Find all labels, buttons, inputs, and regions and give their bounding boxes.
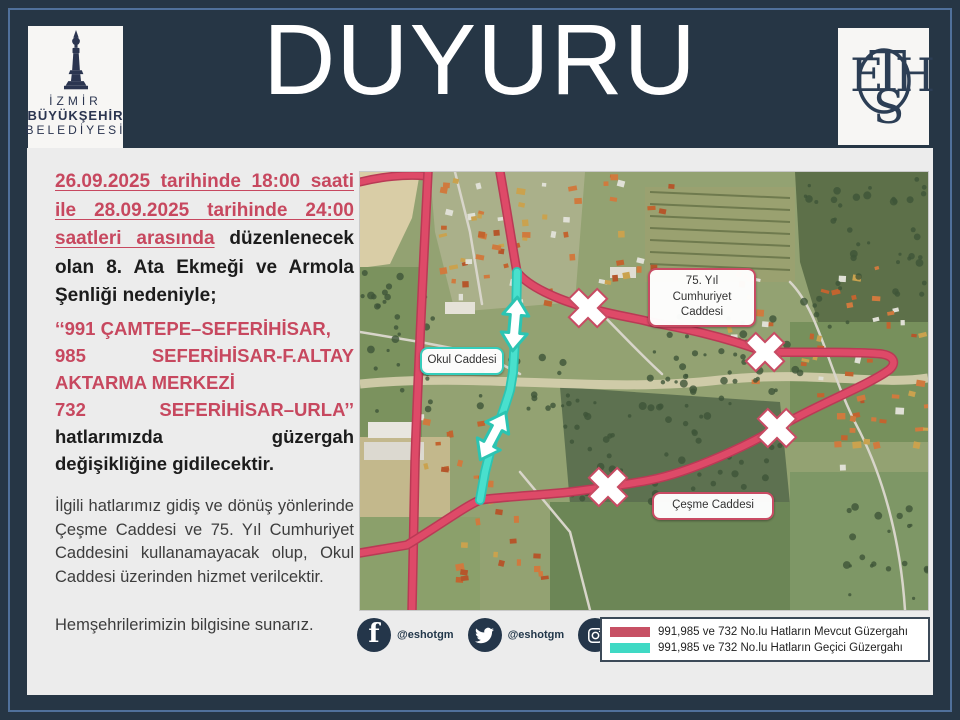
street-label-okul: Okul Caddesi <box>420 347 504 375</box>
logo-text-belediyesi: BELEDİYESİ <box>25 123 125 137</box>
map-legend: 991,985 ve 732 No.lu Hatların Mevcut Güz… <box>600 617 930 662</box>
twitter-account[interactable]: @eshotgm <box>468 618 565 652</box>
street-label-cesme: Çeşme Caddesi <box>652 492 774 520</box>
route-line-aktarma: AKTARMA MERKEZİ <box>55 369 354 396</box>
route-map[interactable]: 75. Yıl Cumhuriyet Caddesi Okul Caddesi … <box>360 172 928 610</box>
content-panel: 26.09.2025 tarihinde 18:00 saati ile 28.… <box>27 148 933 695</box>
paragraph-detail: İlgili hatlarımız gidiş ve dönüş yönleri… <box>55 495 354 591</box>
izmir-clock-tower-icon <box>55 30 97 92</box>
page-title: DUYURU <box>135 6 825 114</box>
legend-swatch-current <box>610 627 650 637</box>
route-line-991: ‘‘991 ÇAMTEPE–SEFERİHİSAR, <box>55 315 354 342</box>
paragraph-closing: Hemşehrilerimizin bilgisine sunarız. <box>55 616 354 635</box>
paragraph-dates: 26.09.2025 tarihinde 18:00 saati ile 28.… <box>55 168 354 311</box>
legend-label-current: 991,985 ve 732 No.lu Hatların Mevcut Güz… <box>658 626 908 638</box>
logo-text-buyuksehir: BÜYÜKŞEHİR <box>28 108 124 123</box>
announcement-text: 26.09.2025 tarihinde 18:00 saati ile 28.… <box>55 168 354 635</box>
facebook-account[interactable]: f @eshotgm <box>357 618 454 652</box>
twitter-icon[interactable] <box>468 618 502 652</box>
paragraph-routes: ‘‘991 ÇAMTEPE–SEFERİHİSAR, 985 SEFERİHİS… <box>55 315 354 478</box>
announcement-poster: İZMİR BÜYÜKŞEHİR BELEDİYESİ DUYURU E T H… <box>0 0 960 720</box>
facebook-handle: @eshotgm <box>397 629 454 641</box>
route-line-985: 985 SEFERİHİSAR-F.ALTAY <box>55 342 354 369</box>
legend-label-temporary: 991,985 ve 732 No.lu Hatların Geçici Güz… <box>658 642 903 654</box>
twitter-handle: @eshotgm <box>508 629 565 641</box>
facebook-icon[interactable]: f <box>357 618 391 652</box>
legend-row-temporary: 991,985 ve 732 No.lu Hatların Geçici Güz… <box>610 642 920 654</box>
logo-text-izmir: İZMİR <box>49 94 102 108</box>
eshot-monogram-icon: E T H S <box>838 28 929 145</box>
legend-swatch-temporary <box>610 643 650 653</box>
izmir-municipality-logo: İZMİR BÜYÜKŞEHİR BELEDİYESİ <box>28 26 123 149</box>
route-change-text-1: hatlarımızda güzergah <box>55 423 354 450</box>
route-change-text-2: değişikliğine gidilecektir. <box>55 450 354 477</box>
street-label-75-yil-cumhuriyet: 75. Yıl Cumhuriyet Caddesi <box>648 268 756 327</box>
eshot-logo: E T H S <box>838 28 929 145</box>
legend-row-current: 991,985 ve 732 No.lu Hatların Mevcut Güz… <box>610 626 920 638</box>
satellite-map-canvas <box>360 172 928 610</box>
route-line-732: 732 SEFERİHİSAR–URLA’’ <box>55 396 354 423</box>
